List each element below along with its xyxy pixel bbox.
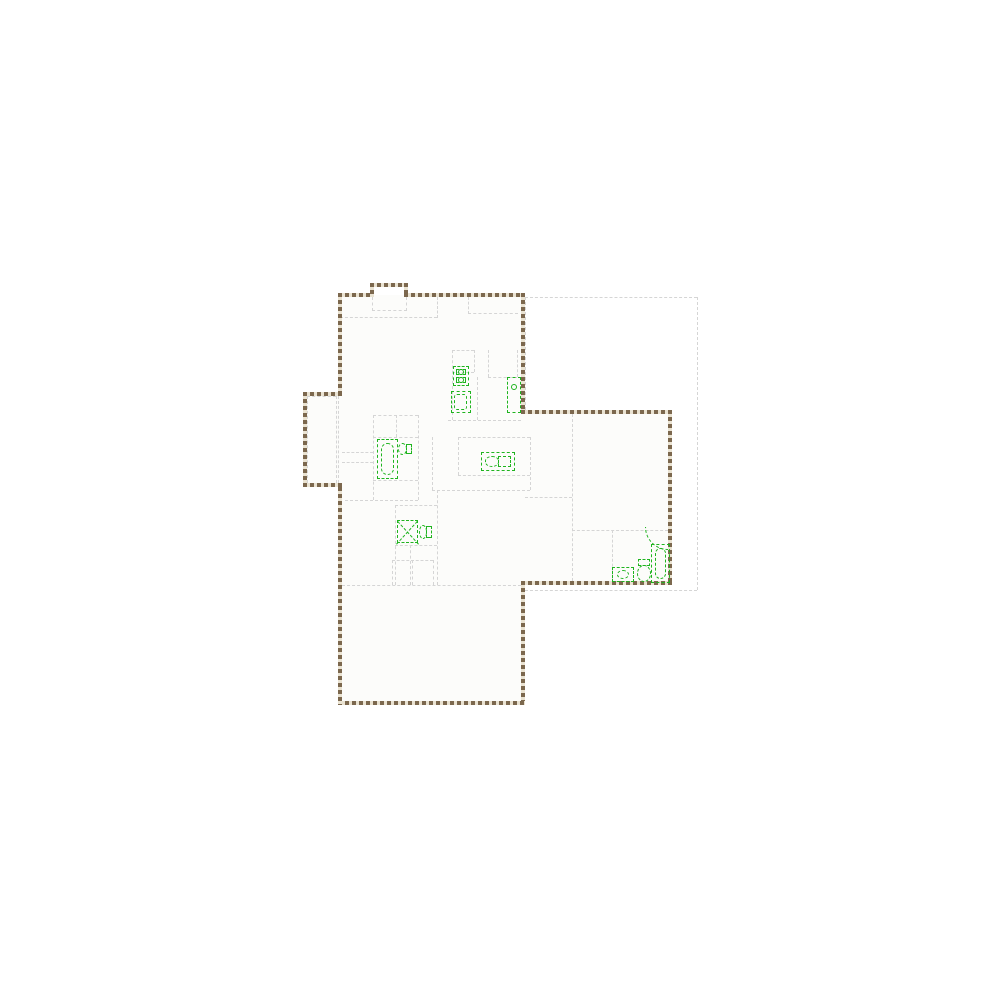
interior-partition <box>342 452 373 453</box>
laundry-sink-fixture <box>451 391 471 413</box>
exterior-wall-segment <box>338 293 342 396</box>
interior-partition <box>517 350 518 377</box>
exterior-wall-segment <box>521 293 525 414</box>
interior-partition <box>477 377 478 420</box>
interior-partition <box>372 310 407 311</box>
washer-dryer-drum <box>456 369 466 375</box>
washer-dryer-knob <box>458 369 464 375</box>
interior-partition <box>525 497 572 498</box>
interior-partition <box>488 350 489 377</box>
interior-partition <box>433 560 434 585</box>
interior-partition <box>373 415 374 500</box>
shower-stall-fixture <box>397 520 418 543</box>
water-heater-fixture <box>507 377 521 413</box>
interior-partition <box>432 437 433 490</box>
toilet-left-fixture <box>398 442 412 456</box>
floor-area <box>340 295 523 703</box>
shower-corner-fixture <box>645 527 668 550</box>
floor-area <box>305 394 340 485</box>
toilet-right-fixture <box>636 559 652 582</box>
washer-dryer-knob <box>458 377 464 383</box>
toilet-right-bowl <box>637 565 651 582</box>
interior-partition <box>525 297 697 298</box>
interior-partition <box>468 297 469 314</box>
interior-partition <box>437 490 438 585</box>
interior-partition <box>412 560 413 585</box>
interior-partition <box>458 437 459 475</box>
floorplan-canvas <box>0 0 1000 1000</box>
interior-partition <box>342 462 373 463</box>
bathtub-left-basin <box>381 443 394 475</box>
interior-partition <box>395 505 437 506</box>
toilet-center-bowl <box>419 525 427 539</box>
exterior-wall-segment <box>521 410 672 414</box>
shower-stall-glass-line <box>397 521 419 545</box>
exterior-wall-segment <box>370 283 408 287</box>
exterior-wall-segment <box>404 293 525 297</box>
vanity-right-fixture <box>612 567 634 582</box>
interior-partition <box>396 415 397 437</box>
exterior-wall-segment <box>338 701 525 705</box>
kitchen-sink-fixture <box>481 452 515 471</box>
interior-partition <box>410 545 411 585</box>
interior-partition <box>474 350 475 372</box>
interior-partition <box>342 585 521 586</box>
interior-partition <box>458 475 530 476</box>
interior-partition <box>340 317 437 318</box>
interior-partition <box>525 590 697 591</box>
exterior-wall-segment <box>303 483 342 487</box>
toilet-center-fixture <box>419 524 432 540</box>
exterior-wall-segment <box>338 487 342 705</box>
interior-partition <box>697 297 698 590</box>
washer-dryer-drum <box>456 377 466 383</box>
interior-partition <box>373 480 418 481</box>
bathtub-left-fixture <box>377 439 398 479</box>
interior-partition <box>452 350 474 351</box>
interior-partition <box>530 437 531 490</box>
exterior-wall-segment <box>303 392 342 396</box>
exterior-wall-segment <box>303 392 307 487</box>
exterior-wall-segment <box>338 293 374 297</box>
laundry-sink-basin <box>454 394 467 410</box>
interior-partition <box>448 420 521 421</box>
bathtub-right-basin <box>655 548 666 579</box>
vanity-right-basin <box>617 570 629 579</box>
interior-partition <box>345 500 418 501</box>
interior-partition <box>437 297 438 318</box>
interior-partition <box>458 437 530 438</box>
interior-partition <box>395 545 437 546</box>
shower-corner-curtain-arc <box>645 527 668 550</box>
interior-partition <box>418 415 419 500</box>
interior-partition <box>468 313 518 314</box>
kitchen-sink-basin <box>485 456 499 467</box>
kitchen-sink-basin <box>498 456 511 467</box>
toilet-left-bowl <box>398 443 407 455</box>
interior-partition <box>307 396 308 483</box>
interior-partition <box>525 297 526 410</box>
interior-partition <box>372 297 373 311</box>
interior-partition <box>392 560 393 585</box>
interior-partition <box>307 396 336 397</box>
water-heater-valve <box>511 384 517 390</box>
interior-partition <box>373 437 418 438</box>
interior-partition <box>338 396 339 483</box>
interior-partition <box>336 396 337 483</box>
interior-partition <box>432 490 530 491</box>
exterior-wall-segment <box>521 581 525 705</box>
interior-partition <box>572 414 573 581</box>
washer-dryer-fixture <box>453 366 469 386</box>
interior-partition <box>406 297 407 311</box>
